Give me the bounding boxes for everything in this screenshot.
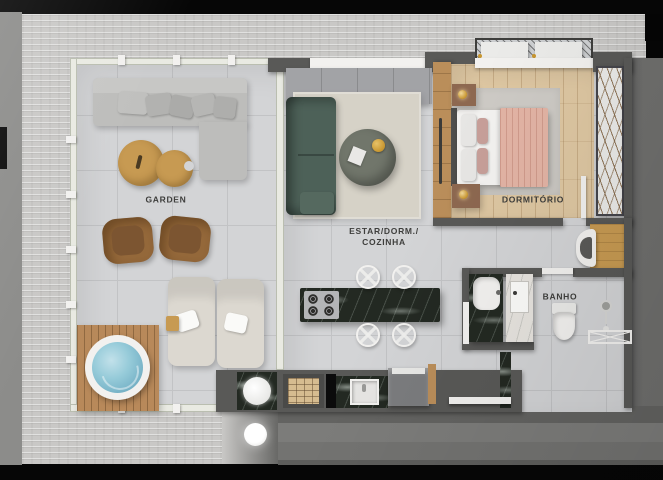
living-window-sill	[310, 58, 426, 68]
shower-head-icon	[600, 300, 612, 312]
garden-chair-seat	[111, 225, 145, 257]
garden-chair-seat	[168, 223, 203, 254]
bedroom-label: DORMITÓRIO	[502, 195, 564, 206]
balcony-planter	[481, 42, 528, 58]
door-handle	[439, 118, 442, 184]
corridor-bottom	[278, 405, 663, 465]
service-wood-strip	[428, 364, 436, 404]
concrete-wall-left	[22, 14, 70, 464]
wall-post	[173, 55, 180, 65]
shower-faucet	[513, 291, 517, 295]
table-gold-bowl	[372, 139, 385, 152]
green-sofa-cushion-line	[298, 154, 334, 156]
left-wall-mark	[0, 127, 7, 169]
bar-stool	[356, 265, 380, 289]
bathroom-label: BANHO	[543, 292, 578, 303]
concrete-walk-bottom	[22, 410, 222, 464]
shower-niche	[510, 281, 529, 313]
bed-cushion	[477, 118, 488, 144]
wall-segment	[433, 218, 563, 226]
lounger-side-table	[166, 316, 179, 331]
bed-cushion	[477, 148, 488, 174]
floorplan-scene: GARDEN ESTAR/DORM./ COZINHA	[0, 0, 663, 480]
cooktop	[304, 291, 339, 319]
bedroom-window-sill	[475, 58, 593, 68]
bed-pillow	[461, 149, 476, 181]
garden-label: GARDEN	[145, 195, 186, 206]
entry-door-leaf	[449, 397, 511, 404]
appliance-top-strip	[392, 368, 425, 374]
nightstand-lamp	[458, 90, 467, 99]
table-notch	[184, 161, 194, 171]
outside-left-band	[0, 12, 22, 465]
round-basin	[243, 377, 271, 405]
glass-partition	[276, 58, 284, 370]
shower-head-stem	[605, 312, 607, 324]
wall-post	[66, 301, 76, 308]
toilet-bowl	[553, 312, 575, 340]
wardrobe	[596, 66, 624, 216]
green-sofa-ottoman	[300, 192, 334, 214]
black-slab	[326, 374, 336, 408]
top-right-notch	[645, 14, 663, 41]
bed-pillow	[461, 114, 476, 146]
nightstand-lamp	[459, 190, 468, 199]
bath-sink-faucet	[496, 290, 501, 295]
garden-sofa-chaise	[199, 122, 247, 180]
exterior-light	[244, 423, 267, 446]
wall-post	[66, 136, 76, 143]
bath-door-leaf	[463, 302, 469, 344]
grill-bricks	[288, 378, 319, 404]
hall-basin-bowl	[580, 237, 592, 259]
bar-stool	[392, 265, 416, 289]
bath-mat	[588, 330, 632, 344]
wall-post	[66, 246, 76, 253]
right-wall-lower	[624, 218, 632, 408]
wall-post	[66, 191, 76, 198]
bar-stool	[356, 323, 380, 347]
kitchen-sink	[350, 379, 379, 405]
sofa-pillow	[117, 91, 148, 115]
living-label: ESTAR/DORM./ COZINHA	[349, 226, 419, 248]
wardrobe-sliding-door	[581, 176, 586, 218]
bath-door	[542, 268, 573, 274]
balcony-planter	[535, 42, 582, 58]
bath-wall-bottom	[462, 342, 534, 350]
bedroom-wood-panel-door	[433, 62, 451, 218]
bedroom-right-wall	[624, 58, 632, 220]
kitchen-sink-faucet	[362, 384, 366, 392]
sofa-pillow	[213, 96, 237, 120]
corridor-right	[630, 58, 663, 406]
bar-stool	[392, 323, 416, 347]
wall-post	[173, 404, 180, 413]
wall-post	[118, 55, 125, 65]
wall-post	[66, 356, 76, 363]
bed-blanket	[500, 108, 548, 187]
wall-post	[228, 55, 235, 65]
garden-sofa-back	[93, 78, 247, 93]
